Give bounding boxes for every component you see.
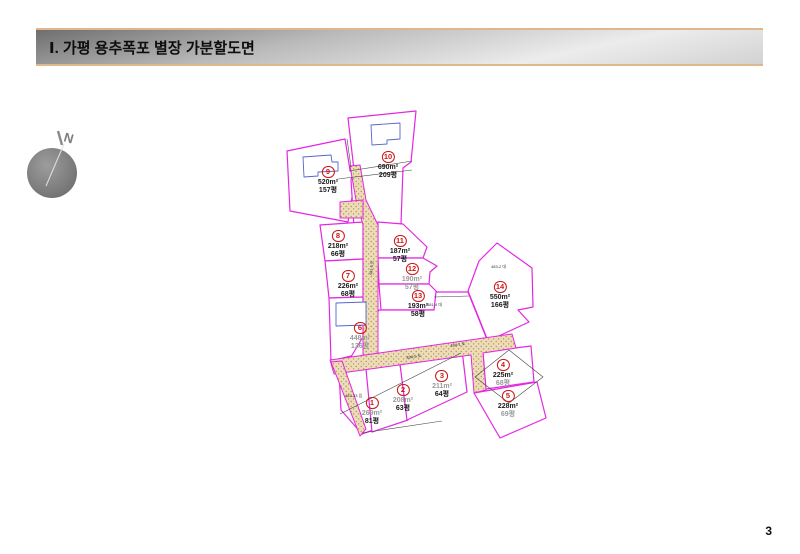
lot-area: 520m² (318, 179, 338, 186)
lot-pyeong: 136평 (350, 343, 370, 350)
lot-number-badge: 6 (353, 322, 366, 334)
lot-pyeong: 81평 (362, 418, 382, 425)
lot-pyeong: 209평 (378, 172, 398, 179)
lot-area: 193m² (408, 303, 428, 310)
lot-number-badge: 2 (396, 384, 409, 396)
lot-label-14: 14 550m² 166평 (490, 277, 510, 309)
lot-label-5: 5 228m² 69평 (498, 386, 518, 418)
lot-pyeong: 66평 (328, 251, 348, 258)
lot-pyeong: 157평 (318, 187, 338, 194)
lot-label-6: 6 448m² 136평 (350, 318, 370, 350)
lot-pyeong: 69평 (498, 411, 518, 418)
lot-label-3: 3 211m² 64평 (432, 366, 452, 398)
lot-number-badge: 13 (411, 290, 424, 302)
page-number: 3 (765, 524, 772, 538)
lot-area: 226m² (338, 283, 358, 290)
lot-label-9: 9 520m² 157평 (318, 162, 338, 194)
lot-number-badge: 5 (501, 390, 514, 402)
lot-number-badge: 12 (405, 263, 418, 275)
lot-pyeong: 63평 (393, 405, 413, 412)
lot-label-1: 1 269m² 81평 (362, 393, 382, 425)
lot-area: 187m² (390, 248, 410, 255)
lot-area: 269m² (362, 410, 382, 417)
lot-number-badge: 11 (393, 235, 406, 247)
lot-number-badge: 10 (381, 151, 394, 163)
parcel-id-label: 481-4 대 (427, 302, 442, 308)
lot-area: 208m² (393, 397, 413, 404)
lot-number-badge: 14 (493, 281, 506, 293)
lot-label-8: 8 218m² 66평 (328, 226, 348, 258)
lot-label-7: 7 226m² 68평 (338, 266, 358, 298)
lot-pyeong: 68평 (338, 291, 358, 298)
lot-pyeong: 58평 (408, 311, 428, 318)
road-widening (340, 200, 363, 218)
parcel-id-label: 483-23 임 (345, 393, 362, 399)
parcel-id-label: 483-2 대 (491, 264, 506, 270)
lot-area: 690m² (378, 164, 398, 171)
lot-area: 218m² (328, 243, 348, 250)
lot-number-badge: 1 (365, 397, 378, 409)
lot-number-badge: 7 (341, 270, 354, 282)
lot-area: 550m² (490, 294, 510, 301)
lot-area: 190m² (402, 276, 422, 283)
lot-pyeong: 64평 (432, 391, 452, 398)
lot-number-badge: 8 (331, 230, 344, 242)
lot-number-badge: 4 (496, 359, 509, 371)
lot-area: 211m² (432, 383, 452, 390)
lot-division-map: 1 269m² 81평 2 208m² 63평 3 211m² 64평 4 22… (0, 0, 800, 554)
lot-pyeong: 166평 (490, 302, 510, 309)
lot-label-2: 2 208m² 63평 (393, 380, 413, 412)
lot-area: 228m² (498, 403, 518, 410)
lot-label-10: 10 690m² 209평 (378, 147, 398, 179)
lot-area: 225m² (493, 372, 513, 379)
lot-number-badge: 9 (321, 166, 334, 178)
lot-label-13: 13 193m² 58평 (408, 286, 428, 318)
map-drawing (0, 0, 800, 554)
lot-label-4: 4 225m² 68평 (493, 355, 513, 387)
lot-area: 448m² (350, 335, 370, 342)
lot-number-badge: 3 (435, 370, 448, 382)
